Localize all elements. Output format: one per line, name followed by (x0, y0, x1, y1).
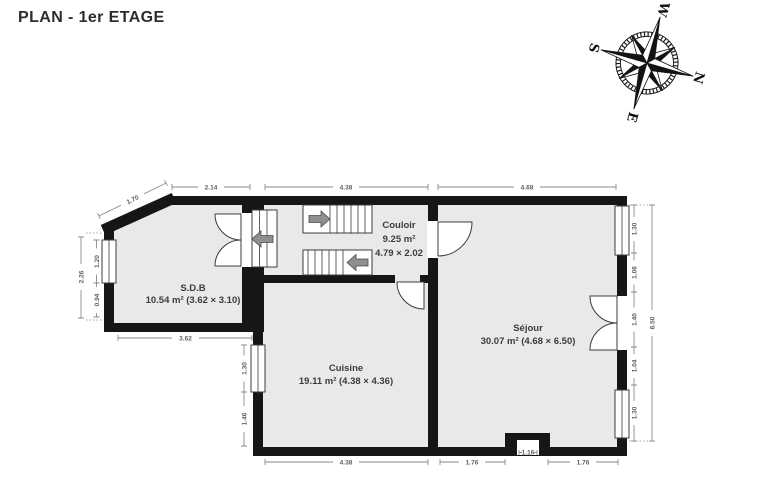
dim-left-cuisine-upper: 1.30 (240, 345, 249, 392)
dim-top-sdb: 2.14 (172, 183, 250, 192)
dim-label: 2.26 (78, 270, 85, 283)
wall-couloir-sejour-upper (428, 196, 438, 221)
dim-left-sdb-lower: 0.94 (92, 283, 101, 317)
dim-label: 1.46 (241, 412, 248, 425)
room-area-couloir: 9.25 m² (383, 234, 416, 245)
dim-bottom-sejour-right: 1.76 (548, 458, 618, 467)
floor-plan-page: PLAN - 1er ETAGE (0, 0, 768, 494)
compass-letter-e: E (623, 110, 640, 124)
dim-bottom-sejour-left: 1.76 (440, 458, 505, 467)
dim-label: 1.16 (522, 450, 535, 457)
wall-top (170, 196, 627, 205)
dim-label: 1.20 (94, 255, 101, 268)
room-label-couloir: Couloir (382, 220, 416, 231)
room-label-sdb: S.D.B (180, 283, 205, 294)
dim-label: 0.94 (94, 293, 101, 306)
dim-label: 4.68 (521, 185, 534, 192)
wall-couloir-bottom (253, 275, 395, 283)
dim-label: 1.76 (466, 460, 479, 467)
dim-label: 4.38 (340, 460, 353, 467)
dim-label: 3.62 (179, 336, 192, 343)
dim-bottom-cuisine: 4.38 (265, 458, 428, 467)
dim-label: 1.30 (631, 222, 638, 235)
room-size-couloir: 4.79 × 2.02 (375, 248, 423, 259)
dim-label: 1.04 (631, 359, 638, 372)
wall-cuisine-sejour (428, 275, 438, 447)
compass-letter-s: S (585, 41, 602, 54)
dim-chimney: 1.16 (519, 450, 537, 457)
dim-label: 1.40 (631, 313, 638, 326)
dim-label: 1.06 (631, 266, 638, 279)
dim-label: 1.30 (631, 406, 638, 419)
dim-label: 2.14 (205, 185, 218, 192)
floor-plan-canvas: S.D.B 10.54 m² (3.62 × 3.10) Couloir 9.2… (0, 0, 768, 494)
french-door-opening (616, 296, 628, 350)
compass-rose: N E S W (569, 0, 723, 138)
dim-bottom-sdb: 3.62 (118, 334, 252, 343)
wall-bottom (253, 447, 627, 456)
room-info-sdb: 10.54 m² (3.62 × 3.10) (146, 295, 241, 306)
compass-letter-w: W (653, 0, 672, 19)
compass-letter-n: N (689, 70, 707, 86)
room-info-cuisine: 19.11 m² (4.38 × 4.36) (299, 376, 393, 387)
room-label-sejour: Séjour (513, 323, 543, 334)
dim-right-sections: 1.30 1.06 1.40 1.04 1.30 (630, 205, 639, 441)
dim-top-sejour: 4.68 (438, 183, 616, 192)
room-info-sejour: 30.07 m² (4.68 × 6.50) (481, 336, 576, 347)
wall-sdb-bottom (104, 323, 263, 332)
dim-left-sdb-upper: 1.20 (92, 240, 101, 283)
dim-label: 4.38 (340, 185, 353, 192)
dim-label: 6.50 (649, 316, 656, 329)
dim-label: 1.30 (241, 362, 248, 375)
sejour-doorway (427, 221, 439, 258)
dim-left-cuisine-lower: 1.46 (240, 392, 249, 446)
room-label-cuisine: Cuisine (329, 363, 363, 374)
dim-top-couloir: 4.38 (265, 183, 428, 192)
dim-label: 1.76 (577, 460, 590, 467)
